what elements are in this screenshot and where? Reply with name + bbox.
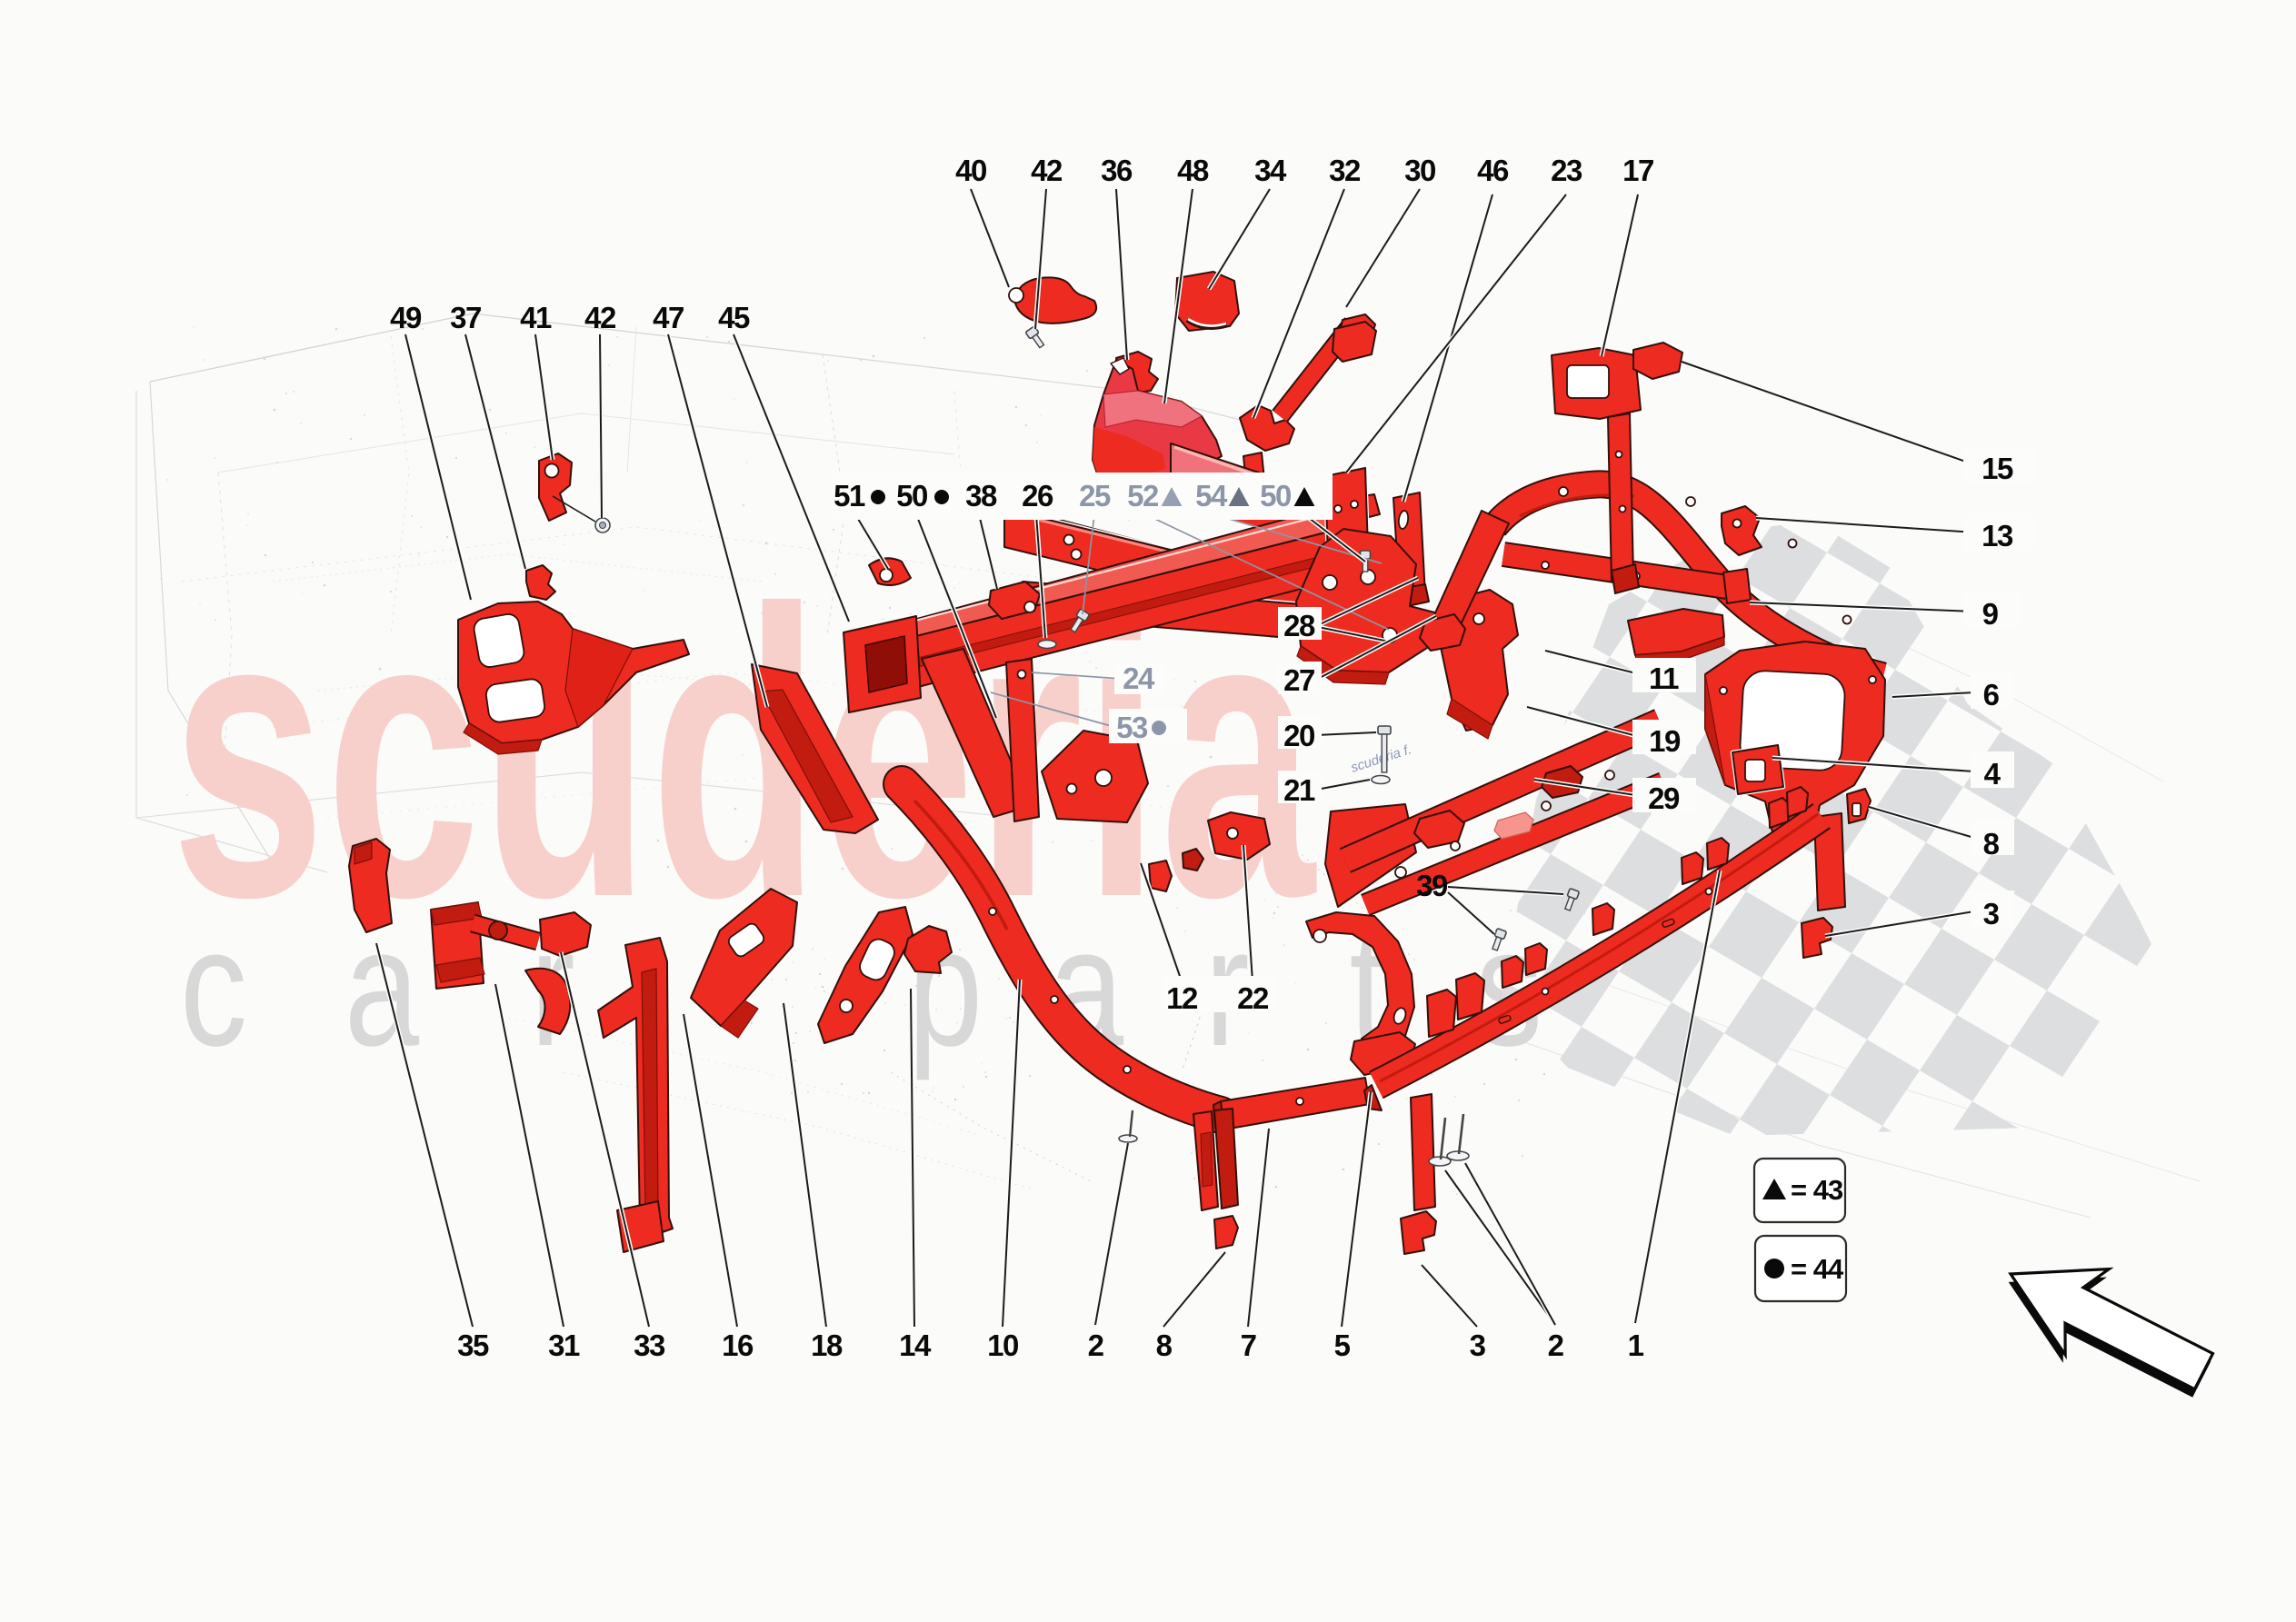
svg-text:33: 33 xyxy=(634,1328,665,1362)
svg-text:42: 42 xyxy=(584,301,616,334)
svg-text:p: p xyxy=(908,893,983,1081)
svg-text:25: 25 xyxy=(1079,479,1111,512)
svg-text:4: 4 xyxy=(1984,757,2002,791)
svg-text:1: 1 xyxy=(1628,1328,1644,1362)
svg-text:8: 8 xyxy=(1156,1328,1173,1362)
svg-text:3: 3 xyxy=(1470,1328,1486,1362)
svg-text:53: 53 xyxy=(1116,711,1148,744)
svg-text:16: 16 xyxy=(722,1328,754,1362)
svg-text:42: 42 xyxy=(1031,154,1063,187)
svg-text:48: 48 xyxy=(1177,154,1209,187)
svg-text:41: 41 xyxy=(520,301,552,334)
svg-text:23: 23 xyxy=(1551,154,1582,187)
svg-text:24: 24 xyxy=(1123,662,1155,695)
svg-text:46: 46 xyxy=(1477,154,1509,187)
svg-text:45: 45 xyxy=(718,301,750,334)
svg-text:19: 19 xyxy=(1649,724,1681,758)
svg-text:22: 22 xyxy=(1237,981,1269,1015)
svg-text:c: c xyxy=(180,893,247,1081)
svg-text:30: 30 xyxy=(1404,154,1435,187)
svg-text:27: 27 xyxy=(1283,663,1314,697)
svg-text:32: 32 xyxy=(1329,154,1361,187)
svg-text:29: 29 xyxy=(1648,781,1680,815)
svg-text:40: 40 xyxy=(955,154,986,187)
svg-text:34: 34 xyxy=(1254,154,1287,187)
svg-text:38: 38 xyxy=(965,479,997,512)
svg-text:6: 6 xyxy=(1983,678,2000,711)
svg-text:13: 13 xyxy=(1982,519,2013,552)
svg-text:50: 50 xyxy=(896,479,927,512)
svg-text:9: 9 xyxy=(1982,597,1999,631)
svg-text:18: 18 xyxy=(811,1328,843,1362)
svg-text:5: 5 xyxy=(1334,1328,1351,1362)
svg-text:39: 39 xyxy=(1416,869,1448,902)
svg-text:52: 52 xyxy=(1127,479,1159,512)
svg-text:21: 21 xyxy=(1283,773,1315,807)
svg-text:= 43: = 43 xyxy=(1791,1174,1843,1206)
svg-text:17: 17 xyxy=(1622,154,1653,187)
svg-text:8: 8 xyxy=(1983,827,2000,861)
svg-text:50: 50 xyxy=(1260,479,1291,512)
svg-text:26: 26 xyxy=(1022,479,1053,512)
svg-text:20: 20 xyxy=(1283,719,1314,752)
svg-text:14: 14 xyxy=(899,1328,932,1362)
svg-text:49: 49 xyxy=(390,301,422,334)
svg-text:31: 31 xyxy=(548,1328,580,1362)
svg-text:2: 2 xyxy=(1088,1328,1104,1362)
svg-text:37: 37 xyxy=(450,301,481,334)
svg-text:51: 51 xyxy=(834,479,865,512)
svg-text:54: 54 xyxy=(1195,479,1228,512)
svg-text:11: 11 xyxy=(1649,662,1679,695)
svg-text:10: 10 xyxy=(987,1328,1018,1362)
svg-text:35: 35 xyxy=(457,1328,489,1362)
svg-text:2: 2 xyxy=(1548,1328,1564,1362)
svg-text:3: 3 xyxy=(1983,897,2000,930)
svg-text:15: 15 xyxy=(1982,452,2013,485)
svg-text:7: 7 xyxy=(1241,1328,1256,1362)
svg-text:47: 47 xyxy=(653,301,684,334)
svg-text:36: 36 xyxy=(1101,154,1133,187)
svg-text:28: 28 xyxy=(1283,609,1315,642)
svg-text:= 44: = 44 xyxy=(1791,1253,1844,1285)
svg-text:12: 12 xyxy=(1166,981,1198,1015)
